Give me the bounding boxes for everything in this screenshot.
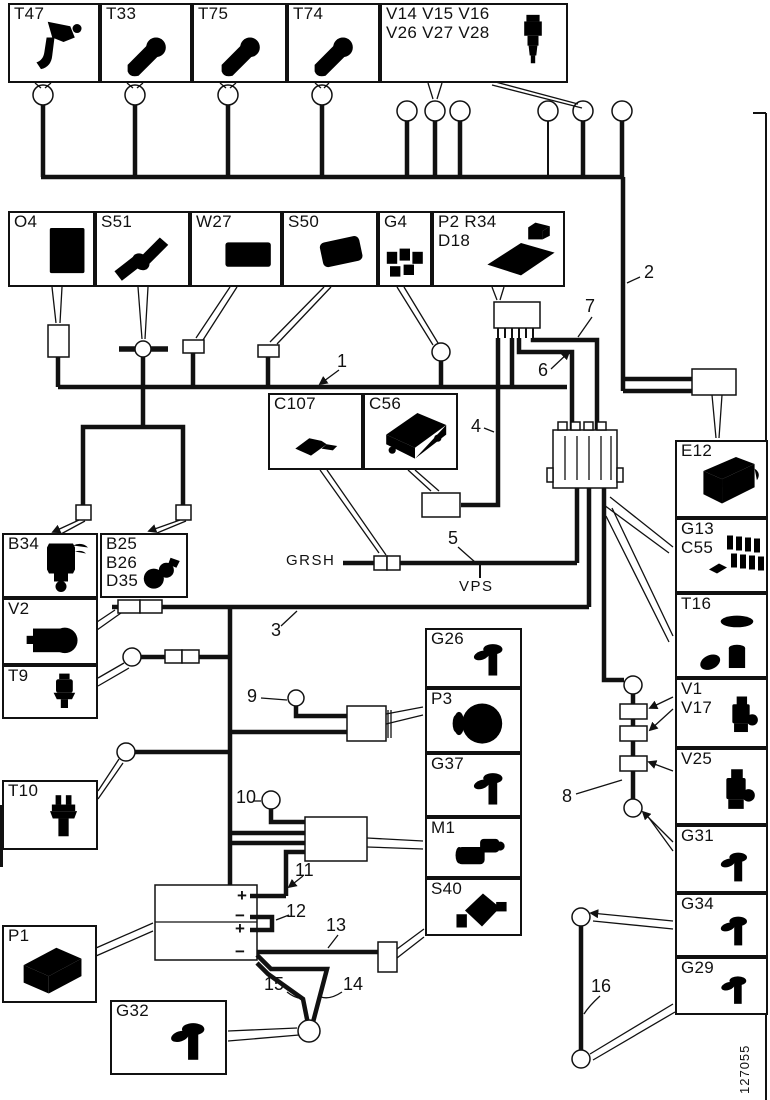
ground-stud-icon: [695, 911, 767, 955]
wire-number-8: 8: [562, 786, 572, 807]
component-box-t74: T74: [287, 3, 380, 83]
wire-number-14: 14: [343, 974, 363, 995]
component-box-e12: E12: [675, 440, 768, 518]
fuseholder-icon: [707, 530, 767, 588]
battery-terminal-plus-1: +: [237, 887, 247, 904]
component-label-t75: T75: [198, 5, 228, 24]
ground-stud-icon: [695, 847, 767, 891]
b-sensor-branch: [83, 342, 183, 505]
wire-number-5: 5: [448, 528, 458, 549]
wire-number-12: 12: [286, 901, 306, 922]
component-label-o4: O4: [14, 213, 37, 232]
component-box-t16: T16: [675, 593, 768, 678]
injector-drop-wires: [407, 120, 622, 177]
speed-sensor-icon: [120, 19, 192, 79]
wire-number-2: 2: [644, 262, 654, 283]
solenoid-valve-icon: [715, 686, 767, 746]
gauge-icon: [42, 218, 94, 284]
ground-stud-icon: [146, 1016, 222, 1072]
battery-wires: [250, 852, 378, 1026]
wire-number-4: 4: [471, 416, 481, 437]
component-label-g37: G37: [431, 755, 464, 774]
component-label-g32: G32: [116, 1002, 149, 1021]
component-label-p2-r34-d18: P2 R34 D18: [438, 213, 497, 250]
switch-lever-icon: [101, 227, 187, 285]
p3-connector: [347, 706, 386, 741]
speed-sensor-icon: [214, 19, 286, 79]
panel-plate-icon: [310, 229, 374, 275]
wire-2-pointer: [627, 277, 640, 283]
connector-block-icon: [382, 239, 430, 283]
button-panel-icon: [218, 231, 280, 279]
component-box-b34: B34: [2, 533, 98, 598]
m1-connector: [305, 817, 367, 861]
component-label-s50: S50: [288, 213, 319, 232]
wire-number-3: 3: [271, 620, 281, 641]
battery-icon: [10, 939, 94, 999]
component-box-p3: P3: [425, 688, 522, 753]
sensor-canister-icon: [32, 539, 92, 595]
wire-6: [519, 338, 572, 430]
component-box-t47: T47: [8, 3, 100, 83]
wire-14-pointer: [321, 992, 342, 998]
component-label-injectors: V14 V15 V16 V26 V27 V28: [386, 5, 490, 42]
component-label-g34: G34: [681, 895, 714, 914]
wire-number-10: 10: [236, 787, 256, 808]
sensor-icon: [24, 15, 94, 77]
wire-2: [623, 177, 692, 391]
component-label-v2: V2: [8, 600, 29, 619]
component-label-g29: G29: [681, 959, 714, 978]
component-label-v25: V25: [681, 750, 712, 769]
component-label-b25-b26-d35: B25 B26 D35: [106, 535, 138, 591]
wire-number-7: 7: [585, 296, 595, 317]
component-label-t9: T9: [8, 667, 28, 686]
wire-16-pointer: [584, 996, 600, 1014]
wire-7-pointer: [578, 317, 592, 337]
component-label-w27: W27: [196, 213, 232, 232]
wiring-diagram-page: T47 T33 T75 T74 V14 V15 V16 V26 V27 V28 …: [0, 0, 770, 1100]
net-label-vps: VPS: [459, 578, 494, 595]
component-box-injectors: V14 V15 V16 V26 V27 V28: [380, 3, 568, 83]
component-label-p3: P3: [431, 690, 452, 709]
component-box-b25-b26-d35: B25 B26 D35: [100, 533, 188, 598]
component-box-t10: T10: [2, 780, 98, 850]
battery-terminal-plus-2: +: [235, 920, 245, 937]
wire-number-16: 16: [591, 976, 611, 997]
wire-6-pointer: [551, 352, 569, 369]
component-label-s40: S40: [431, 880, 462, 899]
component-box-v1-v17: V1 V17: [675, 678, 768, 748]
injector-icon: [500, 7, 566, 81]
pressure-sensor-icon: [40, 669, 88, 719]
s40-connector: [378, 942, 397, 972]
g34-ring: [572, 908, 590, 926]
component-box-w27: W27: [190, 211, 282, 287]
component-box-v25: V25: [675, 748, 768, 825]
component-box-g4: G4: [378, 211, 432, 287]
component-box-p2-r34-d18: P2 R34 D18: [432, 211, 565, 287]
component-label-v1-v17: V1 V17: [681, 680, 712, 717]
component-label-t16: T16: [681, 595, 711, 614]
component-label-g13-c55: G13 C55: [681, 520, 714, 557]
wire-10: [230, 809, 305, 843]
component-box-g26: G26: [425, 628, 522, 688]
wire-8: [604, 488, 633, 799]
temp-sensor-icon: [36, 790, 92, 848]
component-box-v2: V2: [2, 598, 98, 665]
wire-number-13: 13: [326, 915, 346, 936]
wire-3-pointer: [281, 611, 297, 626]
component-box-c56: C56: [363, 393, 458, 470]
component-box-g29: G29: [675, 957, 768, 1015]
wire-number-9: 9: [247, 686, 257, 707]
component-box-g34: G34: [675, 893, 768, 957]
speed-sensor-icon: [307, 19, 379, 79]
wire-8-pointer: [576, 780, 622, 794]
solenoid-valve-icon: [707, 760, 765, 822]
connector-icon: [278, 419, 358, 467]
component-box-s51: S51: [95, 211, 190, 287]
fuel-sender-icon: [693, 611, 767, 675]
component-box-t75: T75: [192, 3, 287, 83]
cylinder-valve-icon: [12, 614, 94, 664]
component-box-s50: S50: [282, 211, 378, 287]
component-box-s40: S40: [425, 878, 522, 936]
component-label-c56: C56: [369, 395, 401, 414]
component-box-t33: T33: [100, 3, 192, 83]
wire-9: [230, 706, 347, 732]
wire-number-6: 6: [538, 360, 548, 381]
net-label-grsh: GRSH: [286, 552, 335, 569]
component-box-o4: O4: [8, 211, 95, 287]
component-box-m1: M1: [425, 817, 522, 878]
ground-stud-icon: [451, 767, 519, 815]
g29-ring: [572, 1050, 590, 1068]
battery-terminal-minus-2: −: [235, 943, 245, 960]
wire-number-11: 11: [295, 860, 314, 881]
component-label-s51: S51: [101, 213, 132, 232]
component-label-e12: E12: [681, 442, 712, 461]
component-label-g4: G4: [384, 213, 407, 232]
sensor-drop-wires: [43, 104, 322, 177]
component-label-p1: P1: [8, 927, 29, 946]
component-box-g37: G37: [425, 753, 522, 817]
component-label-b34: B34: [8, 535, 39, 554]
component-label-g31: G31: [681, 827, 714, 846]
component-box-t9: T9: [2, 665, 98, 719]
component-label-c107: C107: [274, 395, 316, 414]
component-box-g31: G31: [675, 825, 768, 893]
component-label-t10: T10: [8, 782, 38, 801]
wire-5-pointer: [458, 547, 475, 562]
component-label-t47: T47: [14, 5, 44, 24]
component-box-g32: G32: [110, 1000, 227, 1075]
wire-1-pointer: [320, 370, 339, 384]
c56-connector: [422, 493, 460, 517]
figure-number: 127055: [737, 1045, 752, 1094]
wire-13-pointer: [328, 935, 338, 948]
g32-ring: [298, 1020, 320, 1042]
wire-number-15: 15: [264, 974, 284, 995]
component-box-g13-c55: G13 C55: [675, 518, 768, 593]
component-box-p1: P1: [2, 925, 97, 1003]
e12-connector: [692, 369, 736, 395]
component-label-g26: G26: [431, 630, 464, 649]
component-label-t33: T33: [106, 5, 136, 24]
component-label-t74: T74: [293, 5, 323, 24]
component-label-m1: M1: [431, 819, 455, 838]
wire-9-pointer: [261, 698, 287, 700]
wire-4-pointer: [484, 428, 494, 432]
p2-connector-block: [494, 302, 540, 328]
wire-number-1: 1: [337, 351, 347, 372]
component-box-c107: C107: [268, 393, 363, 470]
